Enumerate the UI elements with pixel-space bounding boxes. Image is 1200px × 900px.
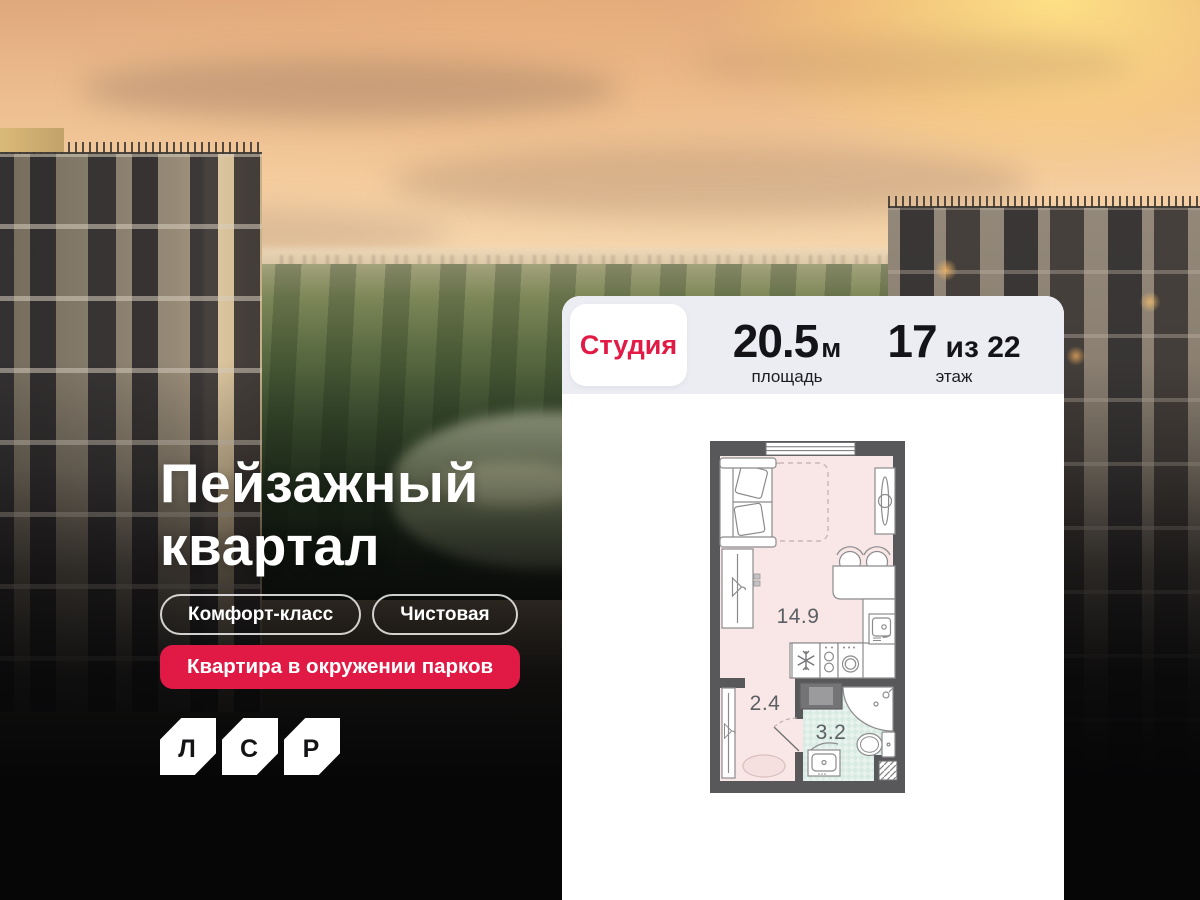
hall-closet-icon — [722, 688, 735, 778]
lsr-logo: Л С Р — [160, 718, 340, 775]
stove-icon — [820, 643, 838, 678]
floor-value: 17 — [887, 318, 936, 364]
radiator-mark — [754, 581, 760, 586]
stat-floor: 17 из 22 этаж — [878, 296, 1030, 394]
stat-area: 20.5 м площадь — [712, 296, 862, 394]
logo-letter: С — [240, 735, 258, 764]
room-area-main: 14.9 — [777, 605, 820, 628]
floor-label: этаж — [878, 367, 1030, 387]
fridge-icon — [792, 643, 820, 678]
area-value: 20.5 — [733, 318, 819, 364]
wardrobe-icon — [722, 549, 753, 628]
title-line-2: квартал — [160, 515, 380, 577]
title-line-1: Пейзажный — [160, 452, 479, 514]
project-title: Пейзажныйквартал — [160, 452, 479, 578]
area-label: площадь — [712, 367, 862, 387]
badge-row: Комфорт-класс Чистовая — [160, 594, 518, 635]
room-area-bath: 3.2 — [816, 721, 847, 744]
hero-banner: Пейзажныйквартал Комфорт-класс Чистовая … — [0, 0, 1200, 900]
highlight-badge: Квартира в окружении парков — [160, 645, 520, 689]
logo-tile-r: Р — [284, 718, 340, 775]
sofa-icon — [720, 458, 776, 547]
floor-total: из 22 — [946, 333, 1021, 363]
washing-machine-icon — [838, 643, 863, 678]
apartment-card[interactable]: Студия 20.5 м площадь 17 из 22 этаж — [562, 296, 1064, 900]
room-area-hall: 2.4 — [750, 692, 781, 715]
shaft-hatched — [879, 761, 897, 780]
wardrobe-mirror-icon — [875, 468, 895, 534]
toilet-icon — [857, 732, 895, 757]
logo-tile-s: С — [222, 718, 278, 775]
badge-finishing: Чистовая — [372, 594, 517, 635]
apartment-type-chip: Студия — [570, 304, 687, 386]
kitchen-sink-icon — [869, 614, 895, 644]
floor-plan: 14.9 2.4 3.2 — [710, 441, 905, 793]
table — [833, 566, 895, 599]
logo-letter: Р — [303, 735, 320, 764]
area-value-row: 20.5 м — [712, 318, 862, 364]
bath-cabinet-icon — [800, 683, 842, 709]
logo-tile-l: Л — [160, 718, 216, 775]
radiator-mark — [754, 574, 760, 579]
badge-comfort-class: Комфорт-класс — [160, 594, 361, 635]
area-unit: м — [821, 335, 841, 362]
card-header: Студия 20.5 м площадь 17 из 22 этаж — [562, 296, 1064, 394]
hero-content: Пейзажныйквартал Комфорт-класс Чистовая … — [160, 452, 479, 578]
logo-letter: Л — [178, 735, 196, 764]
window — [766, 443, 855, 456]
floor-value-row: 17 из 22 — [878, 318, 1030, 364]
rug — [743, 755, 785, 777]
